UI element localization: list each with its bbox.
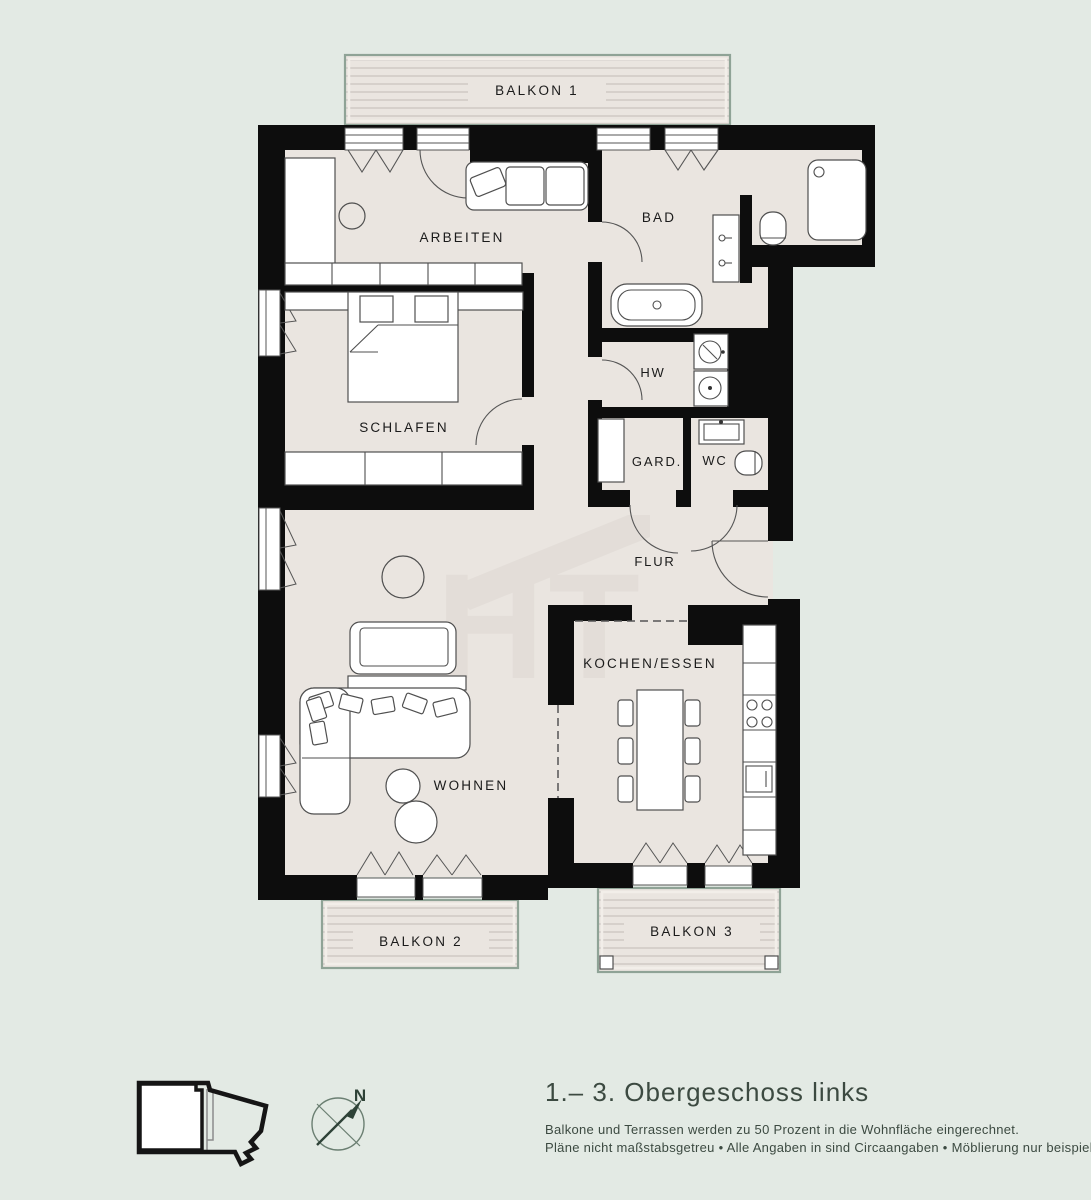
- washer-icon: [694, 334, 728, 369]
- footer-note-2: Pläne nicht maßstabsgetreu • Alle Angabe…: [545, 1140, 1091, 1155]
- desk-icon: [285, 158, 335, 265]
- balcony-balkon3: BALKON 3: [598, 888, 780, 972]
- daybed-cushion: [506, 167, 544, 205]
- balcony-balkon2-label: BALKON 2: [379, 934, 463, 949]
- window-icon: [417, 128, 469, 150]
- balcony-balkon2: BALKON 2: [322, 900, 518, 968]
- pouf-icon: [395, 801, 437, 843]
- chair-icon: [685, 776, 700, 802]
- vanity-icon: [713, 215, 739, 282]
- room-kochen-essen-label: KOCHEN/ESSEN: [583, 656, 717, 671]
- chair-icon: [685, 700, 700, 726]
- window-icon: [345, 128, 403, 150]
- chair-icon: [618, 776, 633, 802]
- balcony-balkon3-label: BALKON 3: [650, 924, 734, 939]
- pillow-icon: [415, 296, 448, 322]
- sideboard-icon: [285, 263, 522, 285]
- dining-table-icon: [637, 690, 683, 810]
- compass-north-label: N: [354, 1086, 366, 1105]
- pillow-icon: [360, 296, 393, 322]
- room-wc-label: WC: [702, 453, 727, 468]
- page-title: 1.– 3. Obergeschoss links: [545, 1077, 869, 1107]
- floor-plan: BALKON 1 BALKON 2 BALKON 3 HT: [0, 0, 1091, 1200]
- chair-icon: [339, 203, 365, 229]
- room-arbeiten-label: ARBEITEN: [419, 230, 504, 245]
- tv-bench-icon: [350, 622, 456, 674]
- balcony-post: [765, 956, 778, 969]
- bathtub-icon: [611, 284, 702, 326]
- side-table-icon: [382, 556, 424, 598]
- balcony-balkon1: BALKON 1: [345, 55, 730, 125]
- chair-icon: [618, 700, 633, 726]
- room-flur-label: FLUR: [634, 554, 675, 569]
- room-gard-label: GARD.: [632, 454, 682, 469]
- footer-note-1: Balkone und Terrassen werden zu 50 Proze…: [545, 1122, 1019, 1137]
- dresser-icon: [285, 452, 522, 485]
- pillow-icon: [309, 721, 328, 745]
- window-icon: [597, 128, 650, 150]
- balcony-balkon1-label: BALKON 1: [495, 83, 579, 98]
- chair-icon: [618, 738, 633, 764]
- room-schlafen-label: SCHLAFEN: [359, 420, 449, 435]
- mini-map-highlighted-unit: [140, 1084, 202, 1150]
- room-gard-furniture: [598, 419, 624, 482]
- closet-icon: [598, 419, 624, 482]
- pillow-icon: [371, 696, 395, 715]
- pouf-icon: [386, 769, 420, 803]
- room-bad-label: BAD: [642, 210, 676, 225]
- sink-icon: [699, 420, 744, 444]
- window-icon: [665, 128, 718, 150]
- balcony-post: [600, 956, 613, 969]
- daybed-cushion: [546, 167, 584, 205]
- toilet-icon: [735, 451, 762, 475]
- shower-icon: [808, 160, 866, 240]
- chair-icon: [685, 738, 700, 764]
- dryer-icon: [694, 371, 728, 406]
- kitchen-counter-icon: [743, 625, 776, 855]
- room-hw-label: HW: [640, 365, 665, 380]
- toilet-icon: [760, 212, 786, 245]
- room-wohnen-label: WOHNEN: [434, 778, 509, 793]
